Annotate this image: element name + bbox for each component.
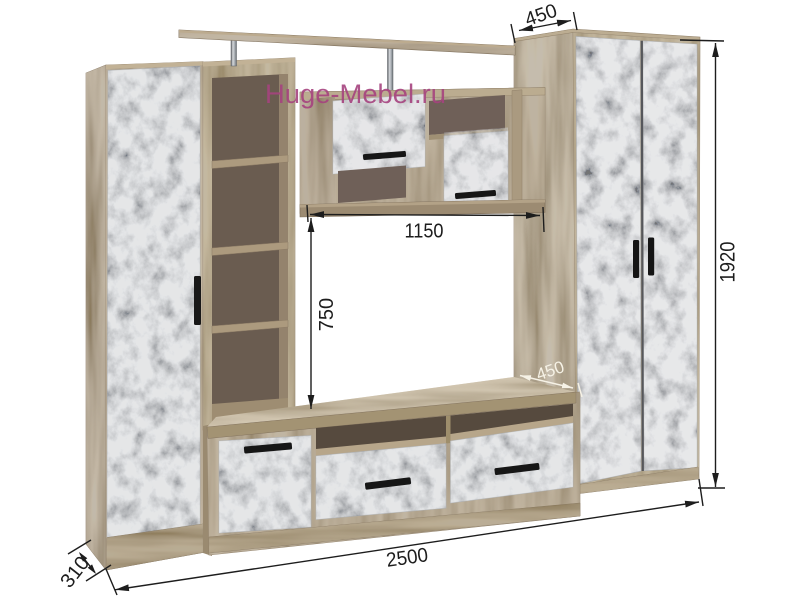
svg-text:1920: 1920 [717, 242, 740, 283]
svg-text:1150: 1150 [405, 221, 444, 243]
svg-text:750: 750 [316, 298, 338, 331]
svg-text:Huge-Mebel.ru: Huge-Mebel.ru [265, 79, 446, 109]
